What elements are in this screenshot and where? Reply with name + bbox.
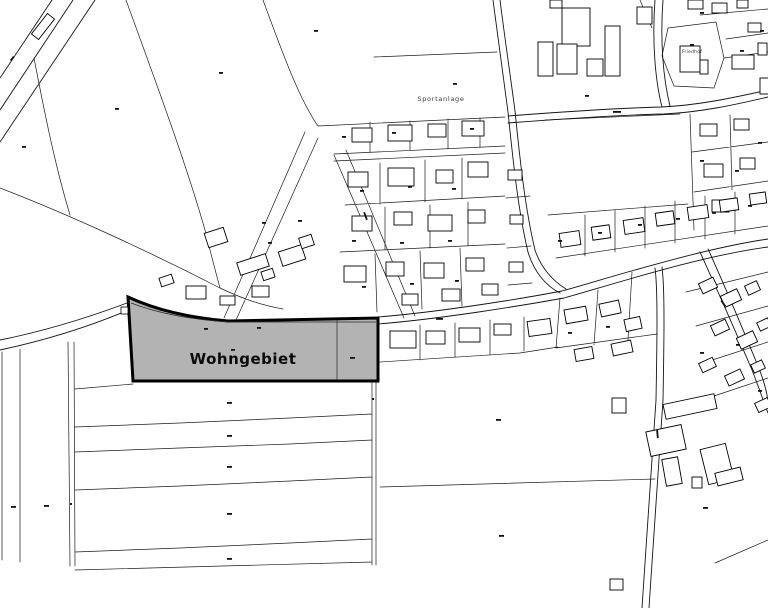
parcel-number-mark (453, 83, 457, 85)
parcel-number-mark (558, 240, 562, 242)
parcel-number-mark (262, 222, 266, 224)
map-background (0, 0, 768, 608)
parcel-number-mark (70, 503, 72, 505)
building (428, 215, 452, 231)
building (605, 26, 620, 76)
parcel-number-mark (470, 128, 474, 130)
area-corner-marker (121, 307, 128, 314)
parcel-number-mark (760, 30, 764, 32)
parcel-number-mark (568, 332, 572, 334)
building (388, 168, 414, 186)
map-page: Wohngebiet Sportanlage Friedhof (0, 0, 768, 608)
building (760, 78, 768, 94)
building (719, 198, 738, 212)
parcel-number-mark (748, 205, 752, 207)
building (482, 284, 498, 295)
parcel-number-mark (257, 327, 261, 329)
building (509, 262, 523, 272)
building (394, 212, 412, 225)
building (390, 331, 416, 348)
friedhof-label: Friedhof (682, 49, 702, 55)
building (655, 211, 675, 226)
parcel-number-mark (11, 506, 16, 508)
parcel-number-mark (227, 513, 232, 515)
parcel-number-mark (606, 326, 610, 328)
building (344, 266, 366, 282)
building (587, 59, 603, 76)
parcel-number-mark (298, 220, 302, 222)
parcel-number-mark (372, 398, 374, 400)
building (388, 125, 412, 141)
parcel-number-mark (219, 72, 223, 74)
parcel-number-mark (360, 190, 364, 192)
building (426, 331, 445, 344)
building (508, 170, 522, 180)
building (704, 164, 723, 177)
parcel-number-mark (352, 240, 356, 242)
building (436, 170, 453, 183)
building (562, 8, 590, 46)
building (252, 286, 269, 297)
parcel-number-mark (735, 170, 739, 172)
building (186, 286, 206, 299)
parcel-number-mark (400, 242, 404, 244)
building (737, 0, 748, 8)
building (348, 172, 368, 187)
building (700, 60, 708, 74)
building (402, 294, 418, 305)
parcel-number-mark (227, 558, 232, 560)
building (352, 128, 372, 142)
parcel-number-mark (204, 328, 208, 330)
parcel-number-mark (700, 352, 704, 354)
building (468, 162, 488, 177)
building (466, 258, 484, 271)
parcel-number-mark (44, 505, 49, 507)
sportanlage-label: Sportanlage (417, 95, 464, 103)
parcel-number-mark (758, 390, 762, 392)
building (740, 158, 755, 169)
parcel-number-mark (585, 95, 589, 97)
parcel-number-mark (499, 535, 504, 537)
building (712, 3, 727, 13)
building (527, 318, 552, 336)
wohngebiet-label: Wohngebiet (190, 350, 297, 368)
building (758, 43, 767, 55)
building (386, 262, 404, 276)
building (538, 42, 553, 76)
building (612, 398, 626, 413)
parcel-number-mark (700, 160, 704, 162)
parcel-number-mark (408, 186, 412, 188)
parcel-number-mark (448, 240, 452, 242)
parcel-number-mark (342, 136, 346, 138)
building (623, 218, 645, 235)
parcel-number-mark (227, 435, 232, 437)
parcel-number-mark (227, 402, 232, 404)
parcel-number-mark (452, 188, 456, 190)
building (688, 0, 703, 9)
parcel-number-mark (115, 108, 119, 110)
parcel-number-mark (227, 466, 232, 468)
building (510, 215, 523, 224)
building (734, 119, 749, 130)
parcel-number-mark (410, 283, 414, 285)
building (732, 55, 754, 69)
building (700, 124, 717, 136)
building (459, 328, 480, 342)
parcel-number-mark (758, 142, 762, 144)
parcel-number-mark (350, 357, 355, 359)
building (574, 347, 594, 362)
building (352, 216, 372, 231)
parcel-number-mark (436, 318, 443, 320)
building (748, 23, 761, 32)
building (428, 124, 446, 137)
building (559, 231, 581, 248)
parcel-number-mark (703, 507, 708, 509)
parcel-number-mark (362, 286, 366, 288)
building (557, 44, 577, 74)
building (610, 579, 623, 590)
parcel-number-mark (496, 419, 501, 421)
building (442, 289, 460, 301)
building (637, 7, 652, 24)
parcel-number-mark (613, 111, 621, 113)
parcel-number-mark (22, 146, 26, 148)
cadastral-map: Wohngebiet Sportanlage Friedhof (0, 0, 768, 608)
building (692, 477, 702, 488)
parcel-number-mark (740, 50, 744, 52)
building (550, 0, 562, 8)
parcel-number-mark (392, 132, 396, 134)
parcel-number-mark (700, 12, 704, 14)
parcel-number-mark (638, 224, 642, 226)
parcel-number-mark (268, 242, 272, 244)
parcel-number-mark (455, 280, 459, 282)
parcel-number-mark (598, 232, 602, 234)
parcel-number-mark (676, 218, 680, 220)
building (687, 205, 709, 221)
parcel-number-mark (712, 212, 716, 214)
building (424, 263, 444, 278)
parcel-number-mark (690, 44, 694, 46)
parcel-number-mark (314, 30, 318, 32)
building (220, 296, 235, 305)
building (749, 192, 766, 205)
parcel-number-mark (736, 344, 740, 346)
building (468, 210, 485, 223)
building (494, 324, 511, 335)
